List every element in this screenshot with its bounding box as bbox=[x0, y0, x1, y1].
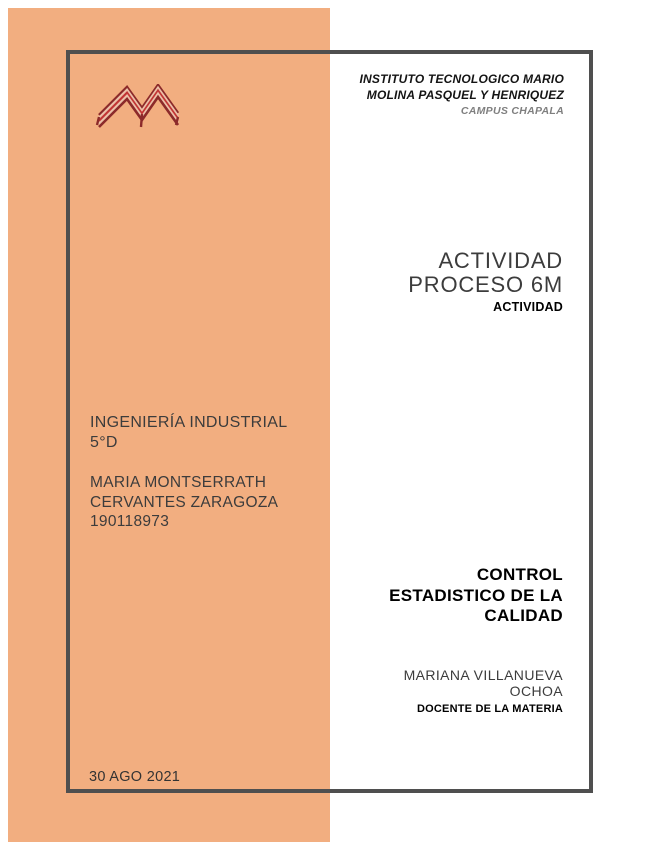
student-name-line2: CERVANTES ZARAGOZA bbox=[90, 493, 330, 513]
activity-title: ACTIVIDAD PROCESO 6M ACTIVIDAD bbox=[243, 249, 563, 314]
activity-title-line2: PROCESO 6M bbox=[243, 273, 563, 297]
campus-name: CAMPUS CHAPALA bbox=[244, 104, 564, 118]
teacher-info: MARIANA VILLANUEVA OCHOA DOCENTE DE LA M… bbox=[283, 668, 563, 715]
course-title: CONTROL ESTADISTICO DE LA CALIDAD bbox=[283, 565, 563, 627]
program-name: INGENIERÍA INDUSTRIAL bbox=[90, 413, 320, 433]
group-label: 5°D bbox=[90, 433, 320, 453]
course-title-line2: ESTADISTICO DE LA bbox=[283, 586, 563, 607]
institute-header: INSTITUTO TECNOLOGICO MARIO MOLINA PASQU… bbox=[244, 72, 564, 118]
teacher-role: DOCENTE DE LA MATERIA bbox=[283, 703, 563, 715]
course-title-line1: CONTROL bbox=[283, 565, 563, 586]
institute-name-line2: MOLINA PASQUEL Y HENRIQUEZ bbox=[244, 88, 564, 104]
institute-m-logo-icon bbox=[95, 84, 180, 128]
student-name-line1: MARIA MONTSERRATH bbox=[90, 473, 330, 493]
student-id: 190118973 bbox=[90, 512, 330, 532]
institute-name-line1: INSTITUTO TECNOLOGICO MARIO bbox=[244, 72, 564, 88]
cover-page: INSTITUTO TECNOLOGICO MARIO MOLINA PASQU… bbox=[0, 0, 655, 848]
date-label: 30 AGO 2021 bbox=[89, 769, 180, 785]
program-info: INGENIERÍA INDUSTRIAL 5°D bbox=[90, 413, 320, 452]
teacher-name-line1: MARIANA VILLANUEVA bbox=[283, 668, 563, 684]
activity-title-line1: ACTIVIDAD bbox=[243, 249, 563, 273]
teacher-name-line2: OCHOA bbox=[283, 684, 563, 700]
course-title-line3: CALIDAD bbox=[283, 606, 563, 627]
student-info: MARIA MONTSERRATH CERVANTES ZARAGOZA 190… bbox=[90, 473, 330, 532]
activity-subtitle: ACTIVIDAD bbox=[243, 300, 563, 314]
